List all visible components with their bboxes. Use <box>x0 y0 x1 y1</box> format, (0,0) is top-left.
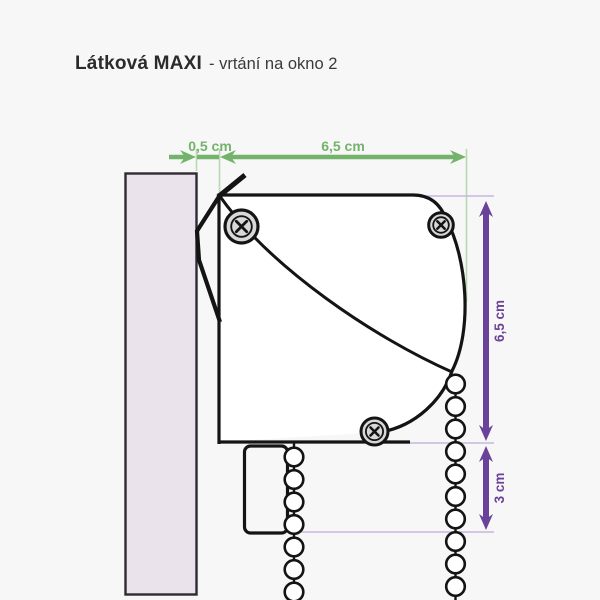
chain-bead <box>446 532 465 551</box>
dimension-label-width: 6,5 cm <box>321 138 365 154</box>
chain-bead <box>446 510 465 529</box>
chain-bead <box>446 375 465 394</box>
chain-bead <box>285 560 304 579</box>
chain-bead <box>446 397 465 416</box>
dimension-top-offset: 0,5 cm <box>169 138 232 164</box>
chain-bead <box>446 487 465 506</box>
chain-bead <box>446 577 465 596</box>
chain-bead <box>285 493 304 512</box>
dimension-label-height: 6,5 cm <box>492 300 507 342</box>
bead-chain-rear <box>446 374 465 600</box>
screw-top-right-icon <box>429 213 454 238</box>
chain-bead <box>446 555 465 574</box>
dimension-label-chain-drop: 3 cm <box>492 473 507 504</box>
chain-bead <box>446 442 465 461</box>
chain-bead <box>285 470 304 489</box>
dimension-right-height: 6,5 cm <box>479 201 507 441</box>
dimension-label-offset: 0,5 cm <box>188 138 232 154</box>
screw-bottom-icon <box>361 418 388 445</box>
screw-top-left-icon <box>225 210 258 243</box>
chain-bead <box>285 515 304 534</box>
chain-bead <box>446 465 465 484</box>
dimension-chain-drop: 3 cm <box>479 446 507 530</box>
diagram-page: Látková MAXI - vrtání na okno 2 0,5 cm 6… <box>0 0 600 600</box>
chain-bead <box>285 538 304 557</box>
chain-bead <box>285 583 304 600</box>
bracket-wall-claw <box>197 195 220 322</box>
chain-bead <box>285 448 304 467</box>
chain-bead <box>446 420 465 439</box>
dimension-top-width: 6,5 cm <box>220 138 466 164</box>
diagram-canvas: 0,5 cm 6,5 cm 6,5 cm 3 cm <box>0 0 600 600</box>
wall-section <box>126 174 197 595</box>
chain-guide-box <box>245 446 288 533</box>
